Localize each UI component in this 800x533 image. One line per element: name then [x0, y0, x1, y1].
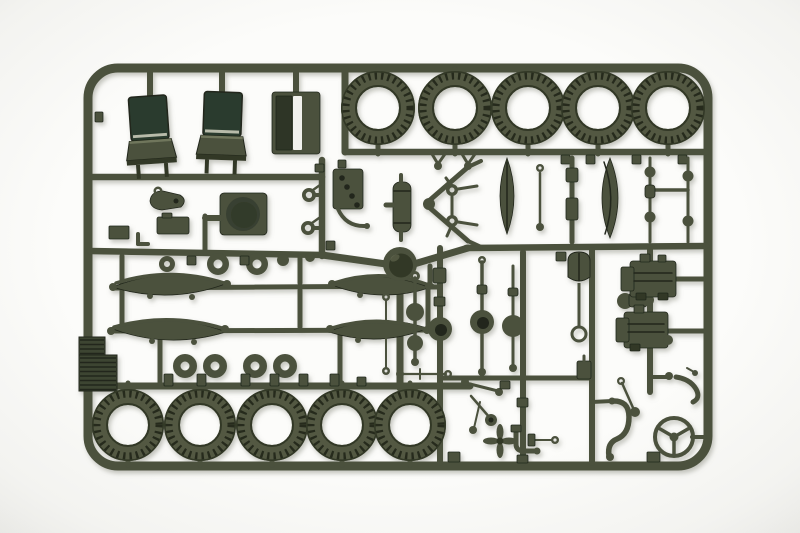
hub-cap	[277, 254, 289, 266]
tow-frame-apex	[423, 198, 435, 210]
sprue-stub	[299, 374, 308, 386]
tire	[419, 72, 491, 144]
tire	[93, 390, 163, 460]
spring-knob	[189, 294, 195, 300]
shovel	[568, 252, 590, 341]
s-pipe	[609, 401, 629, 456]
spring-knob	[191, 339, 197, 345]
sprue-stub	[330, 374, 339, 386]
grab-handle-hook	[312, 218, 319, 223]
radiator-core	[276, 96, 292, 150]
spring-eye	[326, 325, 334, 333]
sprue-runner	[466, 246, 706, 248]
sprue-stub	[315, 164, 324, 172]
ball-joint	[683, 216, 694, 227]
tire	[342, 72, 414, 144]
tire	[165, 390, 235, 460]
axle-eye	[412, 273, 419, 280]
wheel-hub	[247, 358, 264, 375]
bolt-hole	[344, 184, 350, 190]
small-hook-end	[692, 370, 698, 376]
wheel-hub	[207, 358, 224, 375]
engine-block	[630, 261, 676, 297]
sprue-stub	[197, 374, 206, 386]
spring-eye	[328, 280, 336, 288]
spring-knob	[149, 338, 155, 344]
steering-wheel	[655, 418, 693, 456]
sprue-runner	[322, 255, 386, 264]
ball-joint	[645, 212, 656, 223]
tool-box-lid	[162, 213, 172, 218]
sprue-stub	[517, 398, 528, 407]
sprue-stub	[240, 256, 249, 265]
ridged-step-plate	[79, 337, 105, 357]
tie-rod-eye	[445, 371, 451, 377]
lever-knob	[461, 378, 469, 386]
differential	[502, 315, 524, 337]
fuel-line-end	[364, 223, 370, 229]
fuel-line	[338, 209, 366, 226]
jeep-seat	[122, 94, 178, 179]
spring-eye	[107, 327, 115, 335]
sprue-stub	[434, 297, 445, 306]
sprue-stub	[164, 374, 173, 386]
shift-lever	[474, 402, 480, 428]
tire	[562, 72, 634, 144]
rod-collar	[645, 185, 655, 198]
bolt-hole	[349, 193, 355, 199]
tire	[492, 72, 564, 144]
muffler	[393, 182, 411, 232]
sprue-stub	[357, 377, 366, 386]
ridged-step-plate	[79, 355, 117, 391]
bolt-hole	[354, 202, 360, 208]
axle-end	[478, 368, 486, 376]
spring-knob	[147, 293, 153, 299]
sprue-stub	[433, 268, 446, 283]
flywheel	[663, 335, 673, 345]
sprue-stub	[338, 160, 346, 168]
rivet	[174, 199, 179, 204]
differential	[406, 303, 424, 321]
engine-top-detail	[658, 255, 666, 262]
drive-shaft-collar	[566, 198, 578, 220]
spring-eye	[425, 282, 433, 290]
tool-box	[157, 217, 189, 234]
sprue-stub	[511, 425, 521, 432]
tire	[237, 390, 307, 460]
engine-top-detail	[640, 254, 650, 262]
column-base	[536, 223, 544, 231]
engine-top-detail	[634, 305, 644, 313]
bracket-plate	[577, 361, 591, 379]
engine-foot	[630, 344, 640, 351]
sprue-stub	[586, 155, 595, 164]
pipe-flange	[609, 398, 616, 405]
model-kit-sprue-photo	[0, 0, 800, 533]
gearbox-cover-eye	[155, 188, 162, 195]
tire	[307, 390, 377, 460]
shift-lever	[471, 396, 490, 418]
lever-knob	[469, 426, 477, 434]
tire	[632, 72, 704, 144]
engine-foot	[658, 293, 668, 300]
engine-block	[624, 312, 668, 348]
axle-end	[411, 358, 419, 366]
differential	[407, 335, 423, 351]
spring-eye	[223, 280, 231, 288]
sprue-stub	[561, 155, 570, 164]
sprue-stub	[556, 252, 566, 261]
bolt-hole	[339, 175, 345, 181]
pivot-eye	[448, 186, 457, 195]
sprue-stub	[187, 256, 196, 265]
rod-collar	[477, 285, 487, 294]
leaf-spring	[112, 273, 229, 297]
spring-eye	[109, 283, 117, 291]
sprue-stub	[678, 155, 687, 164]
tie-rod-eye	[383, 294, 389, 300]
wheel-hub	[162, 259, 173, 270]
wheel-hub	[177, 358, 194, 375]
engine-foot	[636, 293, 646, 300]
axle-eye	[479, 257, 485, 263]
differential-core	[477, 317, 489, 329]
sprue-svg	[0, 0, 800, 533]
tire	[375, 390, 445, 460]
sprue-stub	[95, 112, 103, 122]
exhaust-pipe	[676, 377, 698, 402]
sprue-stub	[528, 434, 535, 446]
linkage-eye	[618, 378, 624, 384]
mount-plate	[109, 226, 129, 239]
drive-shaft-collar	[566, 168, 578, 182]
pivot-eye	[448, 217, 457, 226]
engine-front	[616, 318, 629, 342]
sprue-stub	[270, 374, 279, 386]
wheel-hub	[210, 256, 226, 272]
radiator-slot	[293, 96, 302, 150]
linkage-eye	[552, 437, 558, 443]
leaf-spring	[110, 318, 227, 342]
sprue	[79, 68, 708, 466]
pedal-core	[489, 418, 494, 423]
pipe-flange	[534, 448, 541, 455]
sprue-stub	[632, 155, 641, 164]
rod-collar	[508, 288, 518, 296]
pipe-flange	[665, 372, 673, 380]
sprue-stub	[326, 241, 335, 250]
engine-front	[621, 267, 634, 291]
tie-rod-eye	[383, 368, 389, 374]
pipe-flange	[606, 453, 614, 461]
pivot-link	[458, 186, 477, 189]
wheel-hub	[249, 256, 265, 272]
sprue-stub	[448, 452, 460, 462]
axle-end	[509, 364, 517, 372]
sprue-stub	[647, 452, 660, 462]
pedal-pad	[500, 381, 510, 389]
spring-knob	[357, 292, 363, 298]
sprue-stub	[241, 374, 250, 386]
small-bracket-foot	[464, 162, 472, 170]
spring-knob	[355, 337, 361, 343]
pivot-link	[458, 222, 477, 225]
ball-joint	[645, 167, 656, 178]
wheel-hub	[277, 358, 294, 375]
small-bracket-foot	[434, 162, 442, 170]
spare-wheel-recess-inner	[231, 202, 257, 228]
jeep-seat	[196, 91, 249, 175]
differential-core	[435, 324, 447, 336]
sprue-stub	[517, 455, 528, 463]
column-eye	[537, 165, 543, 171]
hub-cap	[305, 252, 315, 262]
spring-eye	[221, 325, 229, 333]
pivot-link	[447, 227, 451, 236]
ball-joint	[683, 171, 694, 182]
